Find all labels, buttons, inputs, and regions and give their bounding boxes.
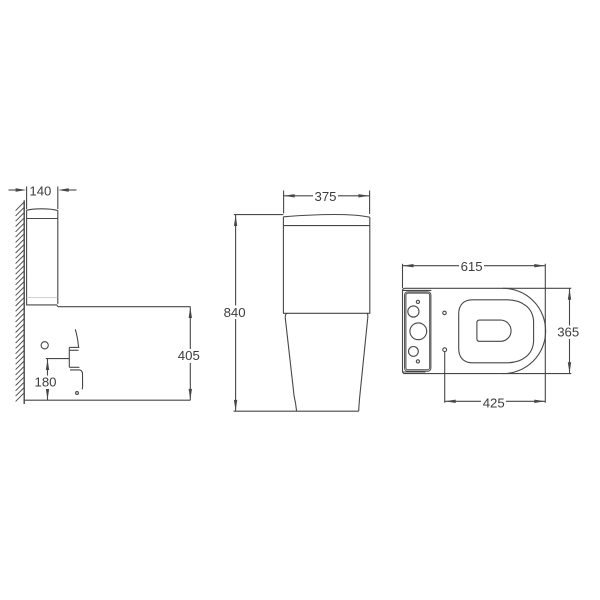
svg-text:615: 615	[461, 259, 483, 274]
svg-text:425: 425	[483, 395, 505, 410]
svg-text:180: 180	[34, 375, 56, 390]
svg-text:840: 840	[224, 305, 246, 320]
svg-text:405: 405	[178, 348, 200, 363]
svg-text:365: 365	[557, 325, 579, 340]
svg-text:140: 140	[29, 184, 51, 199]
svg-text:375: 375	[314, 189, 336, 204]
